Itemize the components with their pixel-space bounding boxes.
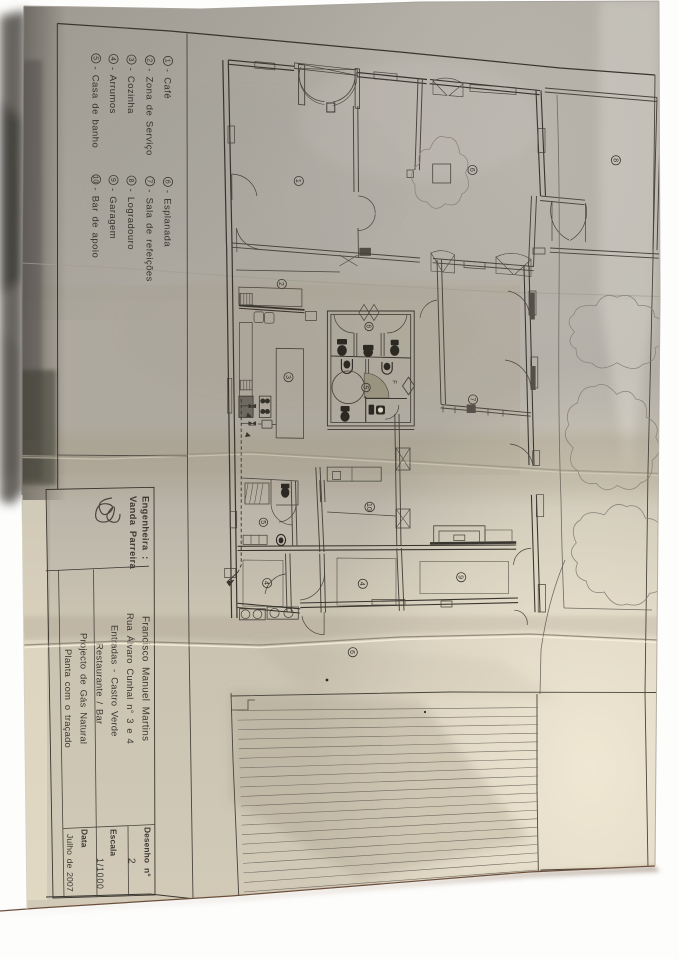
svg-text:9: 9: [457, 575, 464, 579]
svg-text:- Garagem: - Garagem: [107, 188, 118, 239]
svg-text:1: 1: [163, 59, 170, 63]
svg-text:Escala: Escala: [109, 829, 119, 856]
svg-text:Restaurante / Bar: Restaurante / Bar: [95, 643, 106, 724]
svg-text:- Logradouro: - Logradouro: [125, 189, 136, 250]
svg-text:5: 5: [259, 520, 266, 524]
svg-text:- Esplanada: - Esplanada: [162, 190, 173, 248]
svg-text:8: 8: [127, 179, 134, 183]
svg-text:6: 6: [348, 650, 355, 654]
svg-text:- Arrumos: - Arrumos: [107, 67, 118, 114]
svg-text:4: 4: [109, 57, 116, 61]
svg-text:- Zona de Serviço: - Zona de Serviço: [144, 68, 155, 155]
svg-text:2: 2: [125, 858, 136, 864]
svg-text:7: 7: [145, 179, 152, 183]
svg-text:Engenheira :: Engenheira :: [141, 496, 151, 560]
svg-text:- Cozinha: - Cozinha: [125, 68, 136, 115]
svg-text:1: 1: [294, 179, 301, 183]
svg-text:1/1000: 1/1000: [95, 858, 105, 890]
svg-text:- Sala de refeições: - Sala de refeições: [144, 189, 155, 282]
svg-text:Julho de 2007: Julho de 2007: [65, 834, 75, 892]
svg-text:4: 4: [358, 582, 365, 586]
svg-text:- Bar de apoio: - Bar de apoio: [90, 187, 101, 258]
svg-text:Rua Álvaro Cunhal n° 3 e: Rua Álvaro Cunhal n° 3 e 4: [125, 613, 136, 744]
svg-text:2: 2: [145, 58, 152, 62]
svg-text:Data: Data: [80, 829, 90, 848]
svg-text:Planta com o traçado: Planta com o traçado: [63, 649, 74, 748]
svg-text:Vanda Parreira: Vanda Parreira: [128, 496, 138, 570]
svg-text:3: 3: [127, 58, 134, 62]
svg-text:6: 6: [468, 168, 475, 172]
svg-text:6: 6: [163, 180, 170, 184]
svg-text:- Café: - Café: [162, 69, 173, 99]
svg-text:F: F: [390, 380, 396, 384]
svg-text:10: 10: [92, 176, 99, 184]
svg-text:10: 10: [365, 503, 372, 511]
svg-text:5: 5: [361, 385, 368, 389]
svg-text:9: 9: [109, 178, 116, 182]
svg-text:5: 5: [92, 56, 99, 60]
svg-text:8: 8: [611, 158, 618, 162]
svg-text:3: 3: [284, 375, 291, 379]
svg-text:6: 6: [364, 324, 371, 328]
svg-text:7: 7: [468, 397, 475, 401]
svg-text:4: 4: [263, 581, 270, 585]
svg-text:Desenho n°: Desenho n°: [143, 827, 153, 877]
svg-text:2: 2: [277, 282, 284, 286]
svg-text:Projecto de Gás Natural: Projecto de Gás Natural: [79, 633, 90, 744]
svg-text:- Casa de banho: - Casa de banho: [90, 66, 101, 148]
svg-text:Francisco Manuel Martins: Francisco Manuel Martins: [140, 616, 151, 741]
